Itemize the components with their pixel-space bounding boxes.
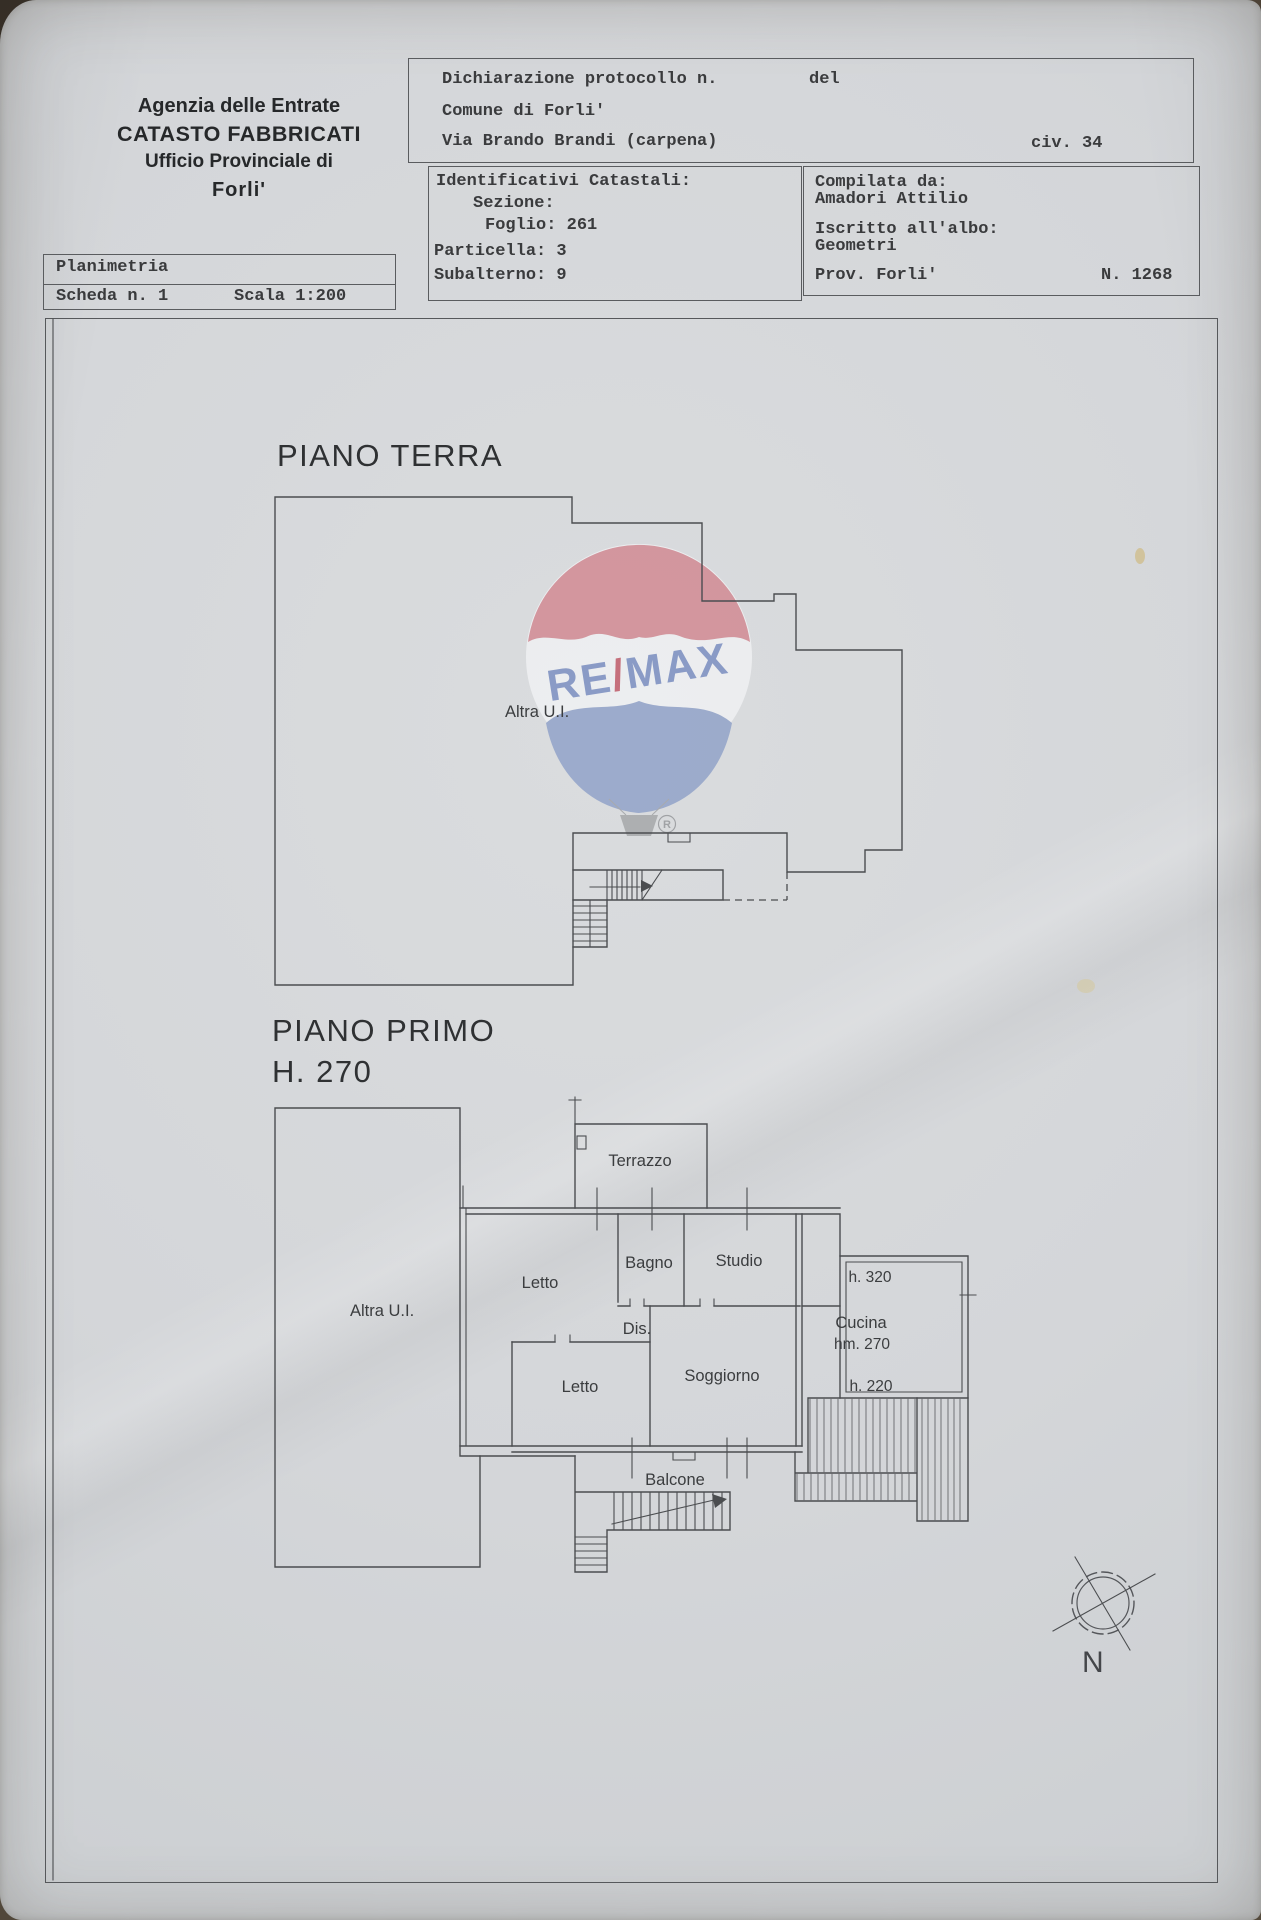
first-altra-ui-label: Altra U.I.: [350, 1302, 414, 1320]
ground-floor-outline: [275, 497, 902, 985]
ground-stair-treads-upper: [607, 870, 642, 900]
hatch-area-a: [810, 1398, 915, 1473]
dis-label: Dis.: [623, 1320, 651, 1338]
paper-stain-1: [1135, 548, 1145, 564]
window-ticks-top: [597, 1188, 747, 1230]
hatch-borders: [795, 1398, 968, 1521]
balcony-stair-arrow: [712, 1494, 727, 1508]
ground-floor-door-notch: [668, 833, 690, 842]
compass-rose: N: [1053, 1557, 1155, 1679]
terrazzo-extension-lines: [463, 1097, 581, 1208]
lower-stair-treads: [575, 1537, 607, 1565]
compass-needles: [1053, 1557, 1155, 1650]
hm270-label: hm. 270: [834, 1336, 890, 1353]
door-jambs-dis: [555, 1335, 570, 1342]
letto1-label: Letto: [522, 1274, 559, 1292]
first-floor-title: PIANO PRIMO: [272, 1013, 495, 1048]
door-jambs-upper: [630, 1299, 714, 1306]
photo-backdrop: Agenzia delle Entrate CATASTO FABBRICATI…: [0, 0, 1261, 1920]
terrazzo-label: Terrazzo: [608, 1152, 671, 1170]
h320-label: h. 320: [848, 1269, 891, 1286]
threshold-notch: [673, 1452, 695, 1460]
ground-stair-rail: [590, 870, 662, 900]
paper-stain-2: [1077, 979, 1095, 993]
compass-north-label: N: [1082, 1646, 1104, 1679]
first-floor-height: H. 270: [272, 1054, 372, 1089]
hatch-area-c: [922, 1398, 960, 1521]
wall-soggiorno-right: [796, 1214, 802, 1446]
first-altra-ui-block: [275, 1108, 480, 1567]
ground-stair-treads-lower: [573, 900, 607, 947]
ground-stair-arrow: [641, 880, 653, 892]
floorplan-drawing: PIANO TERRA Altra U.I. PIANO PRIMO H. 27…: [0, 0, 1261, 1920]
apartment-top-wall: [460, 1208, 840, 1256]
soggiorno-label: Soggiorno: [684, 1367, 759, 1385]
apartment-bottom-wall: [460, 1446, 802, 1456]
bagno-label: Bagno: [625, 1254, 673, 1272]
ground-floor-title: PIANO TERRA: [277, 438, 503, 473]
cucina-label: Cucina: [835, 1314, 887, 1332]
balcony-stair-direction: [612, 1500, 714, 1524]
ground-dashed-opening: [723, 872, 787, 900]
ground-altra-ui-label: Altra U.I.: [505, 703, 569, 721]
h220-label: h. 220: [849, 1378, 892, 1395]
scanned-plan-paper: Agenzia delle Entrate CATASTO FABBRICATI…: [0, 0, 1261, 1920]
studio-label: Studio: [716, 1252, 763, 1270]
letto2-label: Letto: [562, 1378, 599, 1396]
terrazzo-pillar: [577, 1136, 586, 1149]
balcone-label: Balcone: [645, 1471, 705, 1489]
hatch-area-b: [797, 1473, 909, 1501]
